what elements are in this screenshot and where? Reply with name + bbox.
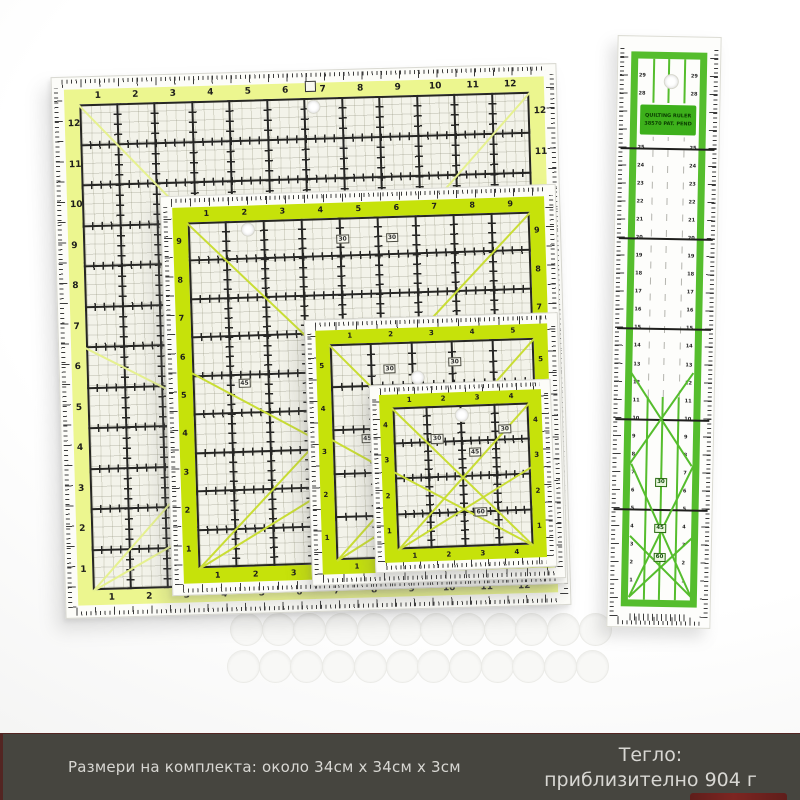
ruler-number: 4 bbox=[321, 406, 326, 413]
pad-circle bbox=[230, 613, 263, 646]
ruler-number: 3 bbox=[291, 569, 297, 577]
ruler-number: 28 bbox=[691, 93, 698, 98]
ruler-number: 7 bbox=[431, 203, 437, 211]
ruler-number: 11 bbox=[685, 399, 692, 404]
ruler-number: 9 bbox=[176, 238, 182, 246]
ruler-number: 24 bbox=[689, 165, 696, 170]
ruler-number: 4 bbox=[182, 430, 188, 438]
angle-degree-label: 45 bbox=[654, 524, 666, 533]
ruler-number: 10 bbox=[70, 201, 83, 210]
accent-strip bbox=[690, 793, 787, 800]
ruler-number: 1 bbox=[347, 333, 352, 340]
ruler-number: 8 bbox=[357, 84, 364, 93]
ruler-number: 11 bbox=[633, 398, 640, 403]
ruler-number: 9 bbox=[394, 83, 401, 92]
ruler-number: 14 bbox=[686, 345, 693, 350]
inner-bottom-ticks bbox=[629, 613, 687, 621]
ruler-number: 4 bbox=[682, 525, 686, 530]
ruler-number: 6 bbox=[75, 363, 82, 372]
ruler-brand-label: QUILTING RULER 38570 PAT. PEND bbox=[640, 105, 697, 136]
logo-mark-icon bbox=[305, 81, 316, 92]
ruler-number: 4 bbox=[514, 549, 519, 556]
weight-value: приблизително 904 г bbox=[543, 768, 758, 793]
ruler-number: 9 bbox=[71, 242, 78, 251]
ruler-number: 4 bbox=[533, 416, 538, 423]
pad-circle bbox=[481, 650, 514, 683]
pad-circle bbox=[449, 650, 482, 683]
pad-circle bbox=[547, 613, 580, 646]
pad-circle bbox=[484, 613, 517, 646]
hang-hole bbox=[306, 100, 320, 114]
ruler-number: 5 bbox=[510, 327, 515, 334]
ruler-number: 16 bbox=[686, 309, 693, 314]
ruler-number: 9 bbox=[632, 434, 636, 439]
ruler-number: 7 bbox=[73, 323, 80, 332]
ruler-number: 1 bbox=[412, 553, 417, 560]
ruler-number: 29 bbox=[639, 73, 646, 78]
angle-degree-label: 30 bbox=[448, 357, 461, 367]
ruler-number: 8 bbox=[535, 265, 541, 273]
ruler-number: 8 bbox=[177, 276, 183, 284]
ruler-number: 8 bbox=[469, 201, 475, 209]
pad-circle bbox=[357, 613, 390, 646]
ruler-number: 4 bbox=[630, 524, 634, 529]
ruler-number: 3 bbox=[384, 457, 389, 464]
ruler-number: 23 bbox=[637, 182, 644, 187]
ruler-number: 1 bbox=[537, 523, 542, 530]
ruler-number: 9 bbox=[507, 200, 513, 208]
pad-circle bbox=[452, 613, 485, 646]
ruler-number: 5 bbox=[319, 363, 324, 370]
ruler-number: 3 bbox=[480, 550, 485, 557]
ruler-number: 2 bbox=[79, 525, 86, 534]
pad-circle bbox=[512, 650, 545, 683]
ruler-number: 2 bbox=[682, 561, 686, 566]
ruler-number: 7 bbox=[319, 85, 326, 94]
ruler-number: 28 bbox=[639, 92, 646, 97]
ruler-number: 12 bbox=[504, 80, 517, 89]
ruler-number: 19 bbox=[687, 255, 694, 260]
ruler-number: 2 bbox=[146, 593, 153, 602]
ruler-number: 5 bbox=[181, 392, 187, 400]
pad-circle bbox=[290, 650, 323, 683]
angle-degree-label: 30 bbox=[499, 425, 512, 435]
ruler-number: 2 bbox=[535, 487, 540, 494]
ruler-number: 1 bbox=[407, 397, 412, 404]
caption-bar: Размери на комплекта: около 34см x 34см … bbox=[0, 733, 800, 800]
set-size-text: Размери на комплекта: около 34см x 34см … bbox=[68, 734, 461, 800]
pad-circle bbox=[322, 650, 355, 683]
ruler-number: 22 bbox=[688, 201, 695, 206]
ruler-number: 4 bbox=[77, 444, 84, 453]
ruler-number: 9 bbox=[684, 435, 688, 440]
ruler-number: 1 bbox=[387, 528, 392, 535]
pad-circle bbox=[544, 650, 577, 683]
pad-circle bbox=[227, 650, 260, 683]
ruler-number: 4 bbox=[470, 329, 475, 336]
ruler-number: 1 bbox=[109, 594, 116, 603]
ruler-long-rect: QUILTING RULER 38570 PAT. PEND 292928282… bbox=[606, 35, 721, 629]
ruler-number: 5 bbox=[538, 356, 543, 363]
product-photo: 1234567891011121234567891011121211109876… bbox=[0, 0, 800, 733]
ruler-number: 3 bbox=[534, 452, 539, 459]
angle-degree-label: 30 bbox=[386, 233, 399, 243]
pad-circle bbox=[354, 650, 387, 683]
ruler-number: 4 bbox=[317, 206, 323, 214]
ruler-number: 11 bbox=[535, 148, 548, 157]
ruler-number: 16 bbox=[634, 308, 641, 313]
ruler-number: 13 bbox=[685, 363, 692, 368]
ruler-number: 2 bbox=[323, 492, 328, 499]
ruler-number: 7 bbox=[536, 303, 542, 311]
angle-degree-label: 45 bbox=[469, 447, 482, 457]
ruler-number: 21 bbox=[636, 218, 643, 223]
pad-circle bbox=[515, 613, 548, 646]
ruler-number: 21 bbox=[688, 219, 695, 224]
angle-degree-label: 45 bbox=[238, 378, 251, 388]
ruler-mini: 123412344321432130304560 bbox=[369, 379, 558, 574]
angle-degree-label: 30 bbox=[336, 235, 349, 245]
ruler-number: 11 bbox=[69, 161, 82, 170]
ruler-number: 12 bbox=[534, 107, 547, 116]
ruler-number: 14 bbox=[634, 344, 641, 349]
ruler-number: 10 bbox=[429, 82, 442, 91]
ruler-number: 2 bbox=[388, 331, 393, 338]
ruler-number: 3 bbox=[630, 542, 634, 547]
ruler-number: 6 bbox=[282, 87, 289, 96]
angle-degree-label: 60 bbox=[474, 507, 487, 517]
ruler-number: 4 bbox=[383, 422, 388, 429]
ruler-number: 11 bbox=[466, 81, 479, 90]
ruler-number: 2 bbox=[630, 560, 634, 565]
ruler-number: 9 bbox=[534, 227, 540, 235]
pad-circle bbox=[293, 613, 326, 646]
pad-circle bbox=[420, 613, 453, 646]
ruler-number: 18 bbox=[687, 273, 694, 278]
ruler-number: 12 bbox=[68, 120, 81, 129]
ruler-number: 5 bbox=[355, 205, 361, 213]
weight-label: Тегло: bbox=[543, 743, 758, 768]
ruler-number: 1 bbox=[325, 535, 330, 542]
angle-degree-label: 30 bbox=[431, 434, 444, 444]
ruler-number: 1 bbox=[203, 210, 209, 218]
ruler-number: 17 bbox=[687, 291, 694, 296]
ruler-number: 2 bbox=[185, 507, 191, 515]
ruler-number: 3 bbox=[78, 485, 85, 494]
ruler-number: 3 bbox=[322, 449, 327, 456]
ruler-number: 22 bbox=[636, 200, 643, 205]
angle-degree-label: 60 bbox=[654, 553, 666, 562]
pad-circle bbox=[576, 650, 609, 683]
ruler-number: 6 bbox=[683, 489, 687, 494]
brand-label-line2: 38570 PAT. PEND bbox=[640, 120, 696, 129]
ruler-number: 2 bbox=[446, 551, 451, 558]
angle-degree-label: 30 bbox=[383, 364, 396, 374]
ruler-number: 3 bbox=[183, 468, 189, 476]
weight-text-block: Тегло: приблизително 904 г bbox=[543, 743, 758, 793]
ruler-number: 13 bbox=[633, 362, 640, 367]
ruler-number: 3 bbox=[170, 90, 177, 99]
ruler-number: 1 bbox=[215, 572, 221, 580]
ruler-number: 17 bbox=[635, 290, 642, 295]
pad-circle bbox=[262, 613, 295, 646]
ruler-number: 5 bbox=[245, 88, 252, 97]
ruler-number: 1 bbox=[355, 563, 360, 570]
ruler-number: 4 bbox=[207, 89, 214, 98]
ruler-number: 8 bbox=[72, 282, 79, 291]
pad-circle bbox=[259, 650, 292, 683]
ruler-number: 23 bbox=[689, 183, 696, 188]
ruler-number: 2 bbox=[241, 209, 247, 217]
ruler-number: 2 bbox=[132, 91, 139, 100]
ruler-number: 1 bbox=[95, 92, 102, 101]
pad-circle bbox=[417, 650, 450, 683]
ruler-number: 18 bbox=[635, 272, 642, 277]
ruler-number: 6 bbox=[631, 488, 635, 493]
ruler-number: 3 bbox=[279, 207, 285, 215]
pad-circle bbox=[386, 650, 419, 683]
ruler-number: 2 bbox=[386, 493, 391, 500]
ruler-number: 3 bbox=[475, 394, 480, 401]
ruler-number: 3 bbox=[429, 330, 434, 337]
ruler-number: 6 bbox=[393, 204, 399, 212]
ruler-number: 4 bbox=[509, 393, 514, 400]
ruler-number: 19 bbox=[635, 254, 642, 259]
ruler-number: 24 bbox=[637, 164, 644, 169]
ruler-number: 6 bbox=[180, 353, 186, 361]
ruler-number: 1 bbox=[186, 545, 192, 553]
pad-circle bbox=[325, 613, 358, 646]
angle-degree-label: 30 bbox=[655, 478, 667, 487]
ruler-number: 29 bbox=[691, 74, 698, 79]
ruler-number: 1 bbox=[80, 566, 87, 575]
hang-hole bbox=[410, 370, 424, 384]
ruler-number: 1 bbox=[629, 578, 633, 583]
pad-circle bbox=[389, 613, 422, 646]
ruler-number: 7 bbox=[179, 315, 185, 323]
ruler-number: 5 bbox=[76, 404, 83, 413]
hang-hole bbox=[241, 222, 255, 236]
ruler-number: 2 bbox=[441, 396, 446, 403]
ruler-number: 2 bbox=[253, 570, 259, 578]
